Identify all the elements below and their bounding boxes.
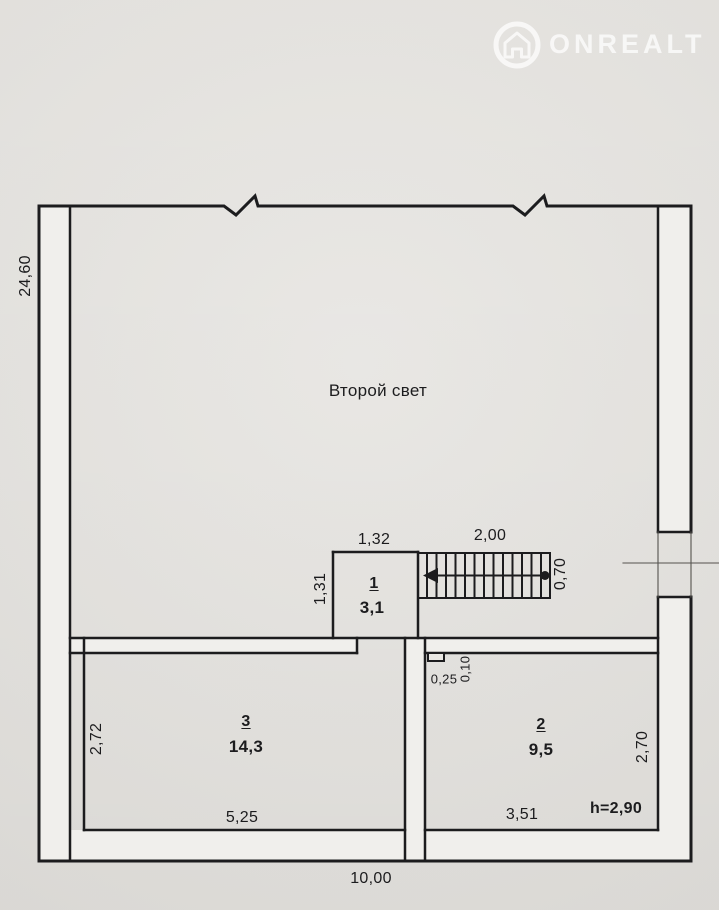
- dim-stub-width: 0,25: [431, 672, 458, 687]
- dim-room1-width: 1,32: [358, 531, 390, 549]
- top-wall: [39, 196, 691, 215]
- dim-stub-depth: 0,10: [458, 656, 473, 683]
- dim-room3-width: 5,25: [226, 809, 258, 827]
- dim-room1-depth: 1,31: [312, 573, 330, 605]
- room1-outline: [333, 552, 418, 638]
- room2-area: 9,5: [529, 740, 554, 760]
- label-second-light: Второй свет: [329, 381, 427, 401]
- floor-plan-photo: ONREALT: [0, 0, 719, 910]
- dim-ceiling-height: h=2,90: [590, 800, 642, 818]
- dim-room2-depth: 2,70: [634, 731, 652, 763]
- room3-number: 3: [241, 713, 250, 731]
- dim-room2-width: 3,51: [506, 806, 538, 824]
- wall-opening: [623, 532, 719, 597]
- floor-plan-svg: [0, 0, 719, 910]
- dim-bottom-total: 10,00: [350, 870, 392, 888]
- room1-number: 1: [369, 575, 378, 593]
- room1-area: 3,1: [360, 598, 385, 618]
- dim-room3-depth: 2,72: [88, 723, 106, 755]
- dim-stair-width: 0,70: [552, 558, 570, 590]
- wall-stub: [428, 653, 444, 661]
- dim-stair-length: 2,00: [474, 527, 506, 545]
- room3-area: 14,3: [229, 737, 263, 757]
- room2-number: 2: [536, 716, 545, 734]
- dim-left-total: 24,60: [17, 255, 35, 297]
